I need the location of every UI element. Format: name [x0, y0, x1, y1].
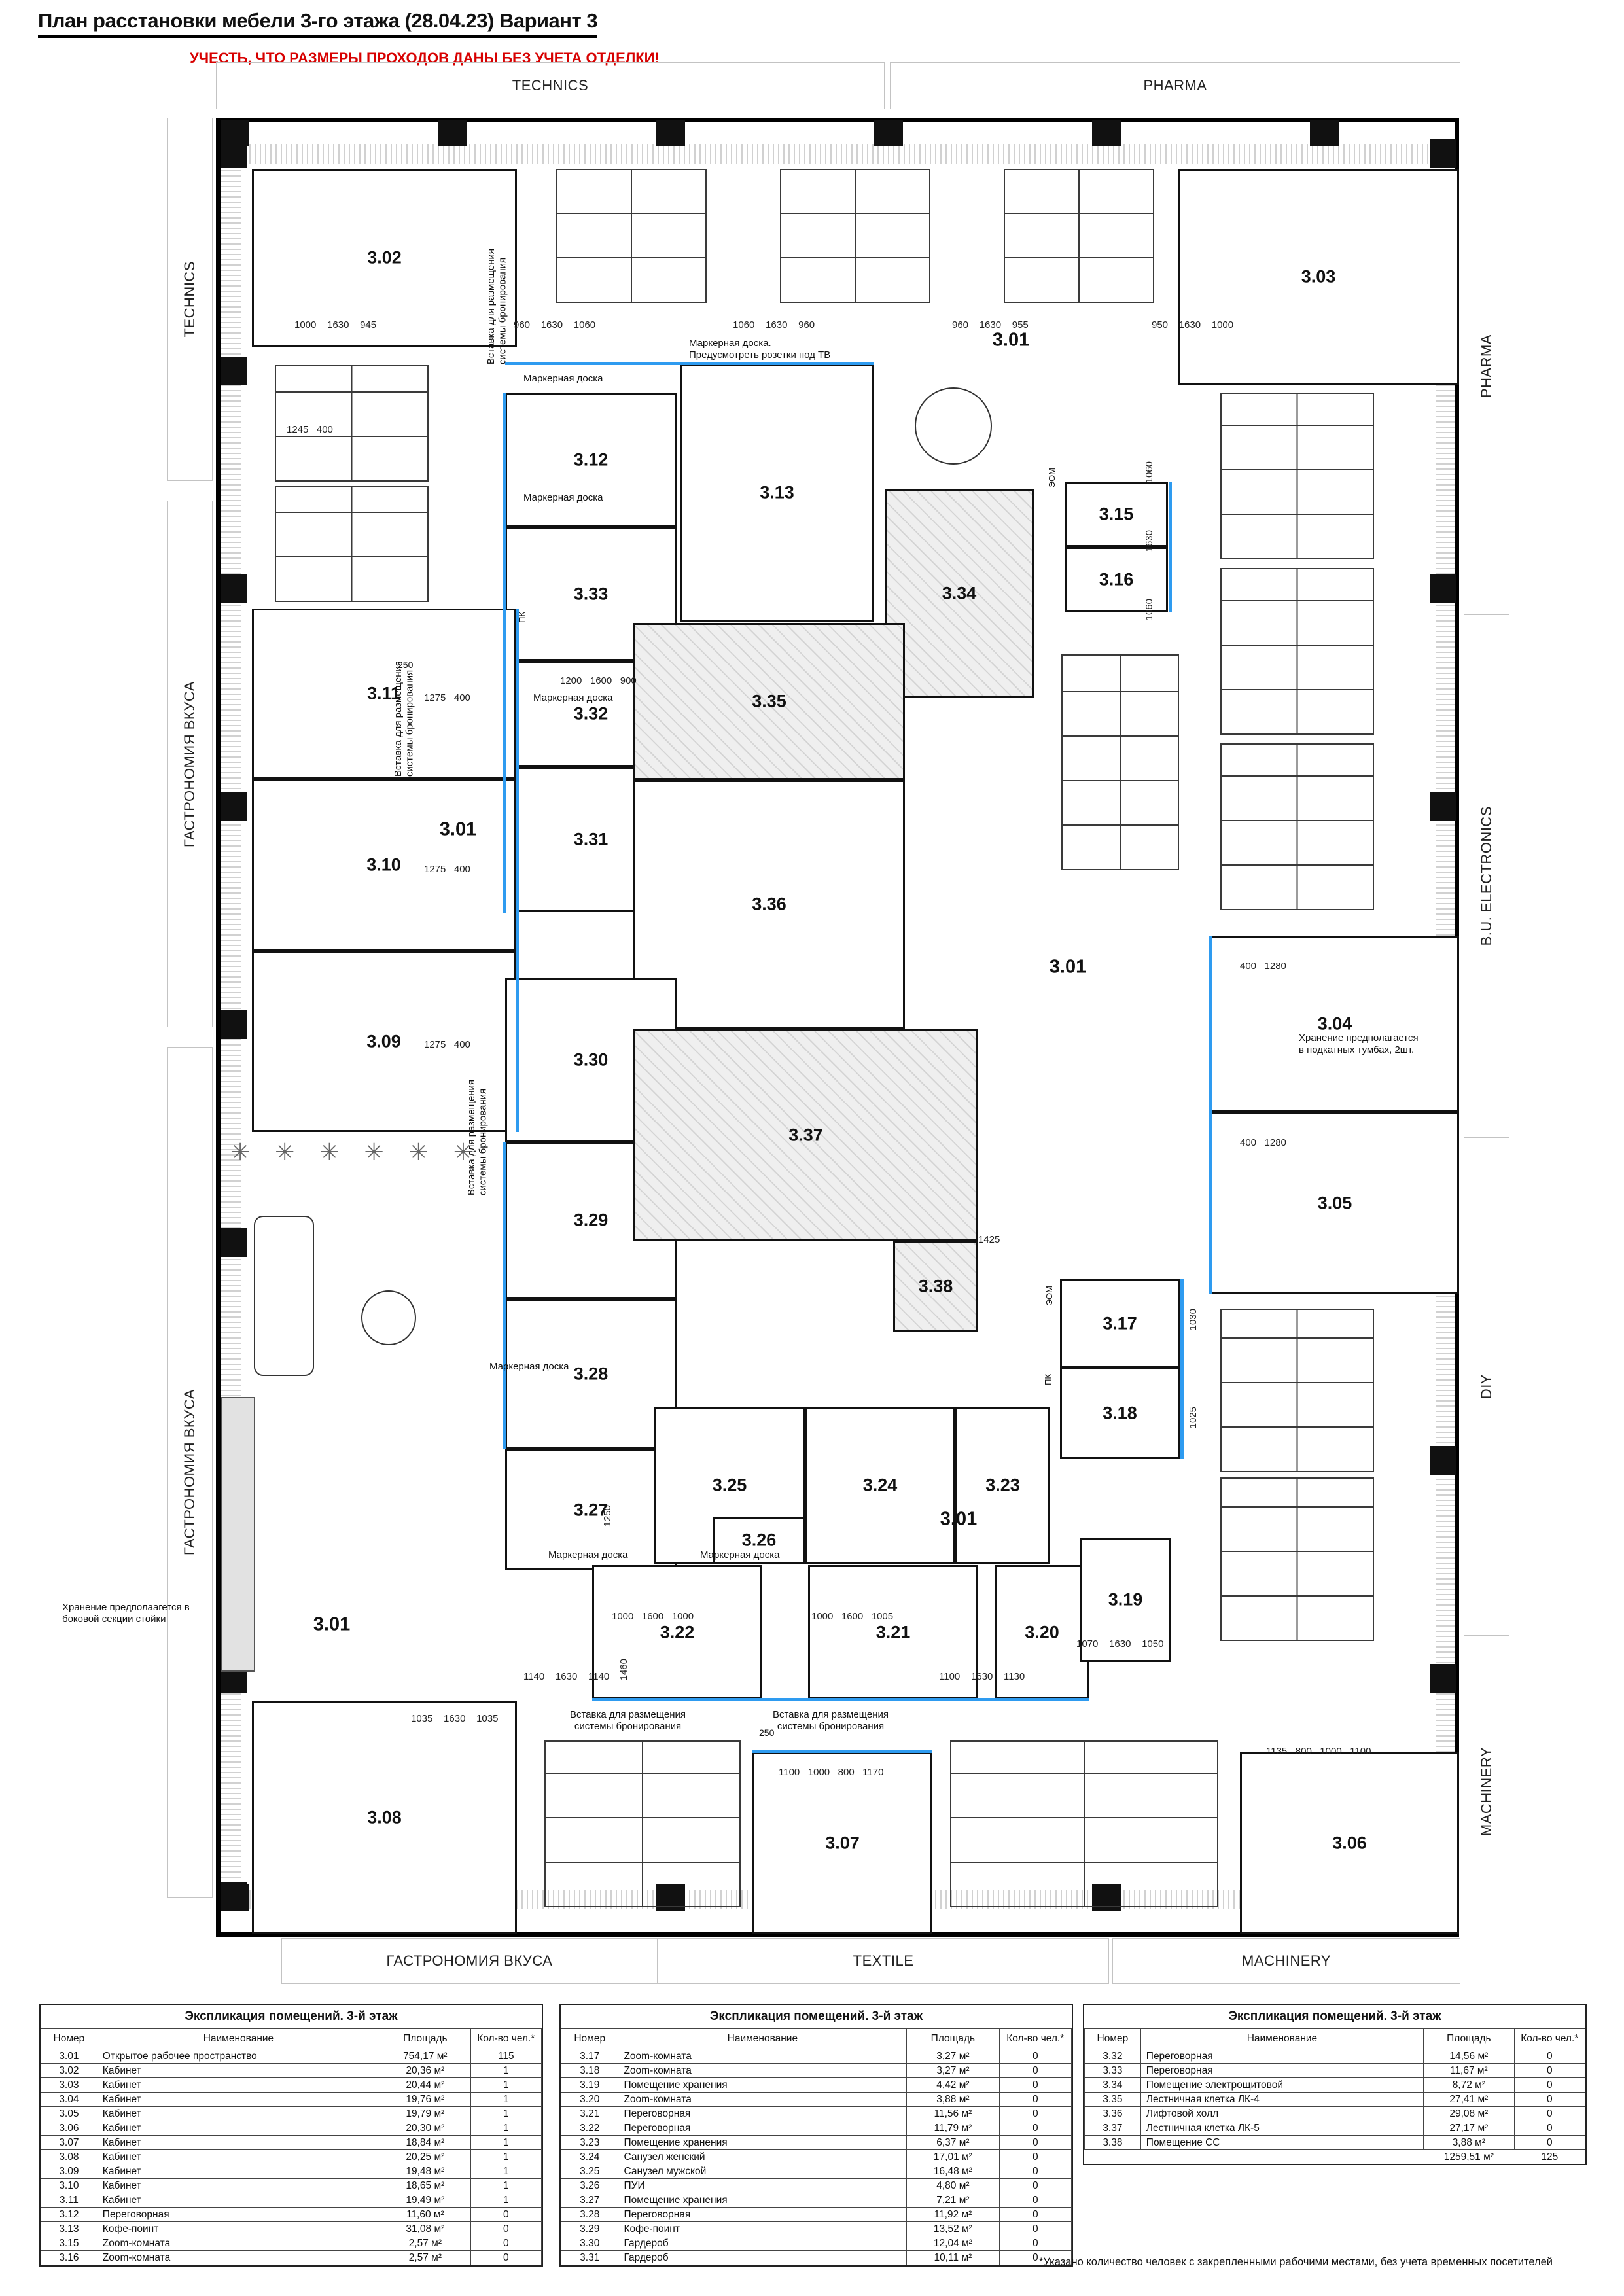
- annotation: 250: [398, 660, 413, 671]
- table-cell: Кабинет: [97, 2064, 380, 2078]
- table-row: 3.18Zoom-комната3,27 м²0: [561, 2064, 1072, 2078]
- room-number-3.16: 3.16: [1099, 570, 1134, 590]
- room-number-3.06: 3.06: [1332, 1833, 1367, 1853]
- zone-label-гастрономия-вкуса: ГАСТРОНОМИЯ ВКУСА: [167, 501, 213, 1027]
- table-cell: 0: [999, 2236, 1072, 2251]
- table-cell: 3,27 м²: [907, 2049, 999, 2064]
- zone-label-textile: TEXTILE: [658, 1938, 1109, 1984]
- table-cell: 0: [470, 2222, 541, 2236]
- table-cell: 0: [999, 2064, 1072, 2078]
- table-cell: 20,30 м²: [380, 2121, 471, 2136]
- dimension-label: 400 1280: [1240, 1137, 1286, 1148]
- dimension-label: 1025: [1188, 1407, 1199, 1428]
- zone-label-technics: TECHNICS: [167, 118, 213, 481]
- dimension-label: 1275 400: [424, 1039, 470, 1050]
- table-cell: 3,88 м²: [907, 2093, 999, 2107]
- table-cell: 2,57 м²: [380, 2251, 471, 2265]
- annotation: Маркерная доска: [523, 373, 635, 385]
- table-row: 3.09Кабинет19,48 м²1: [41, 2164, 542, 2179]
- dimension-label: 1030: [1188, 1309, 1199, 1330]
- annotation: ПК: [517, 612, 527, 623]
- table-cell: 3.16: [41, 2251, 97, 2265]
- column-header: Площадь: [1424, 2029, 1515, 2049]
- dimension-label: 1460: [618, 1659, 629, 1680]
- table-cell: 3.26: [561, 2179, 618, 2193]
- table-cell: 20,25 м²: [380, 2150, 471, 2164]
- room-number-3.20: 3.20: [1025, 1622, 1059, 1642]
- zone-label-text: ГАСТРОНОМИЯ ВКУСА: [181, 1389, 198, 1555]
- table-cell: Кофе-поинт: [618, 2222, 907, 2236]
- table-row: 3.22Переговорная11,79 м²0: [561, 2121, 1072, 2136]
- zone-label-machinery: MACHINERY: [1464, 1648, 1509, 1935]
- table-cell: 3.23: [561, 2136, 618, 2150]
- table-cell: 0: [999, 2078, 1072, 2093]
- table-cell: Кабинет: [97, 2121, 380, 2136]
- table-cell: 10,11 м²: [907, 2251, 999, 2265]
- table-cell: 0: [470, 2208, 541, 2222]
- table-cell: Помещение хранения: [618, 2136, 907, 2150]
- table-row: 3.19Помещение хранения4,42 м²0: [561, 2078, 1072, 2093]
- table-cell: Zoom-комната: [97, 2251, 380, 2265]
- table-cell: 3.19: [561, 2078, 618, 2093]
- table-cell: 3,27 м²: [907, 2064, 999, 2078]
- column-header: Площадь: [907, 2029, 999, 2049]
- room-number-3.31: 3.31: [574, 830, 609, 850]
- room-number-3.30: 3.30: [574, 1050, 609, 1070]
- table-cell: 3.21: [561, 2107, 618, 2121]
- annotation: Маркерная доска: [533, 692, 644, 704]
- table-cell: 1: [470, 2078, 541, 2093]
- column-header: Площадь: [380, 2029, 471, 2049]
- column-header: Наименование: [618, 2029, 907, 2049]
- table-title: Экспликация помещений. 3-й этаж: [561, 2005, 1072, 2028]
- table-cell: 18,65 м²: [380, 2179, 471, 2193]
- room-number-3.26: 3.26: [742, 1530, 777, 1551]
- column-header: Наименование: [97, 2029, 380, 2049]
- annotation: Маркерная доска: [548, 1549, 660, 1561]
- table-cell: Кабинет: [97, 2179, 380, 2193]
- desk-bank: [556, 169, 707, 303]
- zone-label-diy: DIY: [1464, 1137, 1509, 1636]
- desk-bank: [1220, 1477, 1374, 1641]
- dimension-label: 1275 400: [424, 864, 470, 875]
- table-row: 3.01Открытое рабочее пространство754,17 …: [41, 2049, 542, 2064]
- zone-label-text: MACHINERY: [1242, 1952, 1331, 1969]
- zone-label-text: TEXTILE: [853, 1952, 914, 1969]
- glass-wall: [752, 1750, 932, 1753]
- table-cell: 0: [999, 2107, 1072, 2121]
- table-cell: 0: [999, 2179, 1072, 2193]
- table-cell: 0: [999, 2049, 1072, 2064]
- table-row: 3.03Кабинет20,44 м²1: [41, 2078, 542, 2093]
- table-cell: 3.34: [1085, 2078, 1141, 2093]
- table-cell: 8,72 м²: [1424, 2078, 1515, 2093]
- total-cell: 1259,51 м²: [1424, 2150, 1515, 2164]
- glass-wall: [1169, 482, 1172, 612]
- open-space-label: 3.01: [993, 330, 1029, 351]
- table-row: 3.25Санузел мужской16,48 м²0: [561, 2164, 1072, 2179]
- table-cell: 1: [470, 2107, 541, 2121]
- table-cell: 0: [1514, 2121, 1585, 2136]
- table-cell: 11,60 м²: [380, 2208, 471, 2222]
- table-cell: Кофе-поинт: [97, 2222, 380, 2236]
- column-header: Номер: [561, 2029, 618, 2049]
- dimension-label: 1275 400: [424, 692, 470, 703]
- glass-wall: [503, 661, 506, 913]
- table-row: 3.06Кабинет20,30 м²1: [41, 2121, 542, 2136]
- table-cell: 3.29: [561, 2222, 618, 2236]
- room-number-3.33: 3.33: [574, 584, 609, 604]
- dimension-label: 1425: [978, 1234, 1000, 1245]
- dimension-label: 1070 1630 1050: [1076, 1638, 1163, 1650]
- table-cell: 3.32: [1085, 2049, 1141, 2064]
- table-cell: 1: [470, 2093, 541, 2107]
- glass-wall: [592, 1698, 1089, 1701]
- dimension-label: 1630: [1144, 530, 1155, 552]
- table-cell: 0: [470, 2236, 541, 2251]
- table-row: 3.26ПУИ4,80 м²0: [561, 2179, 1072, 2193]
- dimension-label: 1000 1630 945: [294, 319, 376, 330]
- table-cell: 3.38: [1085, 2136, 1141, 2150]
- table-cell: 3.03: [41, 2078, 97, 2093]
- table-cell: 17,01 м²: [907, 2150, 999, 2164]
- table-cell: Гардероб: [618, 2251, 907, 2265]
- table-cell: 3.01: [41, 2049, 97, 2064]
- table-cell: Санузел женский: [618, 2150, 907, 2164]
- annotation: ЭОМ: [1044, 1286, 1054, 1305]
- table-row: 3.07Кабинет18,84 м²1: [41, 2136, 542, 2150]
- table-cell: 1: [470, 2193, 541, 2208]
- desk-bank: [1220, 568, 1374, 735]
- room-number-3.37: 3.37: [788, 1125, 823, 1145]
- table-cell: 0: [999, 2193, 1072, 2208]
- table-cell: Zoom-комната: [618, 2093, 907, 2107]
- table-cell: 3.27: [561, 2193, 618, 2208]
- table-cell: Переговорная: [1140, 2064, 1423, 2078]
- room-number-3.04: 3.04: [1318, 1014, 1352, 1034]
- table-cell: 1: [470, 2136, 541, 2150]
- table-cell: 3.30: [561, 2236, 618, 2251]
- table-title: Экспликация помещений. 3-й этаж: [1084, 2005, 1585, 2028]
- table-row: 3.32Переговорная14,56 м²0: [1085, 2049, 1585, 2064]
- table-cell: Открытое рабочее пространство: [97, 2049, 380, 2064]
- table-row: 3.30Гардероб12,04 м²0: [561, 2236, 1072, 2251]
- schedule-footnote: *Указано количество человек с закрепленн…: [1039, 2256, 1595, 2269]
- table-cell: 3.20: [561, 2093, 618, 2107]
- room-number-3.07: 3.07: [825, 1833, 860, 1853]
- column-header: Кол-во чел.*: [999, 2029, 1072, 2049]
- room-number-3.02: 3.02: [367, 248, 402, 268]
- table-row: 3.05Кабинет19,79 м²1: [41, 2107, 542, 2121]
- table-cell: 31,08 м²: [380, 2222, 471, 2236]
- floor-plan-sheet: План расстановки мебели 3-го этажа (28.0…: [0, 0, 1624, 2296]
- circle-shape: [361, 1290, 416, 1345]
- table-cell: 3.08: [41, 2150, 97, 2164]
- table-cell: 18,84 м²: [380, 2136, 471, 2150]
- room-number-3.32: 3.32: [574, 704, 609, 724]
- table-cell: 1: [470, 2121, 541, 2136]
- table-row: 3.27Помещение хранения7,21 м²0: [561, 2193, 1072, 2208]
- table-cell: 3.11: [41, 2193, 97, 2208]
- desk-bank: [950, 1740, 1218, 1907]
- table-cell: 27,41 м²: [1424, 2093, 1515, 2107]
- table-cell: Переговорная: [618, 2121, 907, 2136]
- table-title: Экспликация помещений. 3-й этаж: [41, 2005, 542, 2028]
- room-number-3.29: 3.29: [574, 1210, 609, 1231]
- table-cell: 3,88 м²: [1424, 2136, 1515, 2150]
- table-cell: 27,17 м²: [1424, 2121, 1515, 2136]
- table-row: 3.34Помещение электрощитовой8,72 м²0: [1085, 2078, 1585, 2093]
- table-row: 3.17Zoom-комната3,27 м²0: [561, 2049, 1072, 2064]
- room-number-3.35: 3.35: [752, 692, 786, 712]
- table-cell: Санузел мужской: [618, 2164, 907, 2179]
- sofa-shape: [254, 1216, 314, 1376]
- table-cell: 0: [999, 2208, 1072, 2222]
- table-row: 3.31Гардероб10,11 м²0: [561, 2251, 1072, 2265]
- table-cell: Лестничная клетка ЛК-5: [1140, 2121, 1423, 2136]
- table-cell: ПУИ: [618, 2179, 907, 2193]
- dimension-label: 1140 1630 1140: [523, 1671, 609, 1682]
- glass-wall: [503, 1142, 506, 1449]
- total-cell: [1085, 2150, 1141, 2164]
- column-header: Наименование: [1140, 2029, 1423, 2049]
- table-cell: 16,48 м²: [907, 2164, 999, 2179]
- table-cell: 3.15: [41, 2236, 97, 2251]
- table-cell: 3.17: [561, 2049, 618, 2064]
- annotation: Маркерная доска. Предусмотреть розетки п…: [689, 338, 866, 361]
- table-cell: 3.09: [41, 2164, 97, 2179]
- dimension-label: 950 1630 1000: [1152, 319, 1233, 330]
- table-cell: 1: [470, 2064, 541, 2078]
- table-cell: 3.36: [1085, 2107, 1141, 2121]
- wstrip-shape: [239, 144, 1436, 164]
- table-cell: Лестничная клетка ЛК-4: [1140, 2093, 1423, 2107]
- zone-label-technics: TECHNICS: [216, 62, 885, 109]
- table-cell: 3.24: [561, 2150, 618, 2164]
- page-title: План расстановки мебели 3-го этажа (28.0…: [38, 9, 597, 38]
- table-row: 3.36Лифтовой холл29,08 м²0: [1085, 2107, 1585, 2121]
- zone-label-text: TECHNICS: [181, 261, 198, 337]
- annotation: ЭОМ: [1047, 468, 1057, 487]
- table-cell: Переговорная: [97, 2208, 380, 2222]
- table-cell: Кабинет: [97, 2164, 380, 2179]
- dimension-label: 400 1280: [1240, 961, 1286, 972]
- column-header: Номер: [1085, 2029, 1141, 2049]
- dimension-label: 1060: [1144, 461, 1155, 483]
- dimension-label: 960 1630 1060: [514, 319, 595, 330]
- table-cell: 0: [1514, 2136, 1585, 2150]
- zone-label-text: PHARMA: [1478, 334, 1495, 398]
- table-row: 3.08Кабинет20,25 м²1: [41, 2150, 542, 2164]
- room-schedule-table-2: Экспликация помещений. 3-й этажНомерНаим…: [559, 2004, 1073, 2267]
- glass-wall: [516, 609, 519, 1132]
- room-number-3.09: 3.09: [366, 1031, 401, 1051]
- table-cell: 3.06: [41, 2121, 97, 2136]
- room-number-3.21: 3.21: [876, 1622, 911, 1642]
- zone-label-pharma: PHARMA: [1464, 118, 1509, 615]
- annotation: Вставка для размещения системы бронирова…: [760, 1709, 901, 1732]
- table-cell: 3.22: [561, 2121, 618, 2136]
- table-cell: 11,56 м²: [907, 2107, 999, 2121]
- desk-bank: [1220, 743, 1374, 910]
- zone-label-text: ГАСТРОНОМИЯ ВКУСА: [181, 681, 198, 847]
- table-cell: 0: [1514, 2078, 1585, 2093]
- table-cell: 0: [999, 2222, 1072, 2236]
- desk-bank: [1004, 169, 1154, 303]
- annotation: Хранение предполаагется в боковой секции…: [62, 1602, 239, 1625]
- annotation: 250: [759, 1727, 774, 1739]
- zone-label-text: ГАСТРОНОМИЯ ВКУСА: [387, 1952, 553, 1969]
- table-row: 3.29Кофе-поинт13,52 м²0: [561, 2222, 1072, 2236]
- table-cell: 3.25: [561, 2164, 618, 2179]
- zone-label-pharma: PHARMA: [890, 62, 1460, 109]
- table-cell: 0: [999, 2150, 1072, 2164]
- table-cell: 3.35: [1085, 2093, 1141, 2107]
- table-cell: 3.12: [41, 2208, 97, 2222]
- annotation: Маркерная доска: [489, 1361, 601, 1373]
- table-cell: 19,49 м²: [380, 2193, 471, 2208]
- table-row: 3.10Кабинет18,65 м²1: [41, 2179, 542, 2193]
- desk-bank: [544, 1740, 741, 1907]
- room-number-3.19: 3.19: [1108, 1590, 1143, 1610]
- open-space-label: 3.01: [1050, 957, 1086, 978]
- room-number-3.24: 3.24: [863, 1475, 898, 1496]
- dimension-label: 1000 1600 1005: [811, 1611, 893, 1622]
- table-row: 3.16Zoom-комната2,57 м²0: [41, 2251, 542, 2265]
- desk-bank: [1220, 1309, 1374, 1472]
- zone-label-text: PHARMA: [1143, 77, 1207, 94]
- table-cell: Кабинет: [97, 2107, 380, 2121]
- table-row: 3.13Кофе-поинт31,08 м²0: [41, 2222, 542, 2236]
- room-number-3.08: 3.08: [367, 1807, 402, 1828]
- table-cell: 3.28: [561, 2208, 618, 2222]
- column-header: Кол-во чел.*: [1514, 2029, 1585, 2049]
- table-cell: 19,48 м²: [380, 2164, 471, 2179]
- annotation: Вставка для размещения системы бронирова…: [557, 1709, 698, 1732]
- annotation: Вставка для размещения системы бронирова…: [393, 661, 415, 777]
- circle-shape: [915, 387, 992, 465]
- table-cell: Помещение электрощитовой: [1140, 2078, 1423, 2093]
- table-cell: 19,76 м²: [380, 2093, 471, 2107]
- room-number-3.23: 3.23: [985, 1475, 1020, 1496]
- glass-wall: [1180, 1279, 1184, 1459]
- room-schedule-table-1: Экспликация помещений. 3-й этажНомерНаим…: [39, 2004, 543, 2267]
- desk-bank: [1220, 393, 1374, 559]
- zone-label-text: TECHNICS: [512, 77, 588, 94]
- dimension-label: 1100 1000 800 1170: [779, 1767, 883, 1778]
- table-cell: 0: [1514, 2064, 1585, 2078]
- table-row: 3.02Кабинет20,36 м²1: [41, 2064, 542, 2078]
- table-cell: Лифтовой холл: [1140, 2107, 1423, 2121]
- table-cell: 3.33: [1085, 2064, 1141, 2078]
- table-cell: Кабинет: [97, 2078, 380, 2093]
- table-cell: 1: [470, 2164, 541, 2179]
- desk-bank: [780, 169, 930, 303]
- table-cell: Кабинет: [97, 2193, 380, 2208]
- table-row: 3.33Переговорная11,67 м²0: [1085, 2064, 1585, 2078]
- table-cell: Zoom-комната: [97, 2236, 380, 2251]
- table-row: 3.20Zoom-комната3,88 м²0: [561, 2093, 1072, 2107]
- annotation: Маркерная доска: [523, 492, 635, 504]
- column-header: Кол-во чел.*: [470, 2029, 541, 2049]
- desk-bank: [275, 365, 429, 482]
- table-row: 3.04Кабинет19,76 м²1: [41, 2093, 542, 2107]
- glass-wall: [503, 393, 506, 661]
- zone-label-гастрономия-вкуса: ГАСТРОНОМИЯ ВКУСА: [281, 1938, 658, 1984]
- glass-wall: [505, 362, 874, 365]
- dimension-label: 1035 1630 1035: [411, 1713, 498, 1724]
- table-cell: 0: [999, 2136, 1072, 2150]
- table-cell: 0: [1514, 2107, 1585, 2121]
- table-row: 3.12Переговорная11,60 м²0: [41, 2208, 542, 2222]
- table-cell: 0: [999, 2164, 1072, 2179]
- table-cell: Zoom-комната: [618, 2064, 907, 2078]
- open-space-label: 3.01: [940, 1509, 977, 1530]
- annotation: Вставка для размещения системы бронирова…: [466, 1080, 489, 1195]
- open-space-label: 3.01: [313, 1614, 350, 1636]
- table-row: 3.15Zoom-комната2,57 м²0: [41, 2236, 542, 2251]
- table-cell: Переговорная: [618, 2208, 907, 2222]
- glass-wall: [1209, 936, 1212, 1294]
- table-row: 3.23Помещение хранения6,37 м²0: [561, 2136, 1072, 2150]
- table-row: 3.11Кабинет19,49 м²1: [41, 2193, 542, 2208]
- table-cell: 3.02: [41, 2064, 97, 2078]
- table-cell: 4,80 м²: [907, 2179, 999, 2193]
- dimension-label: 1200 1600 900: [560, 675, 637, 686]
- room-number-3.36: 3.36: [752, 894, 786, 915]
- table-row: 3.28Переговорная11,92 м²0: [561, 2208, 1072, 2222]
- zone-label-text: MACHINERY: [1478, 1747, 1495, 1836]
- dimension-label: 1000 1600 1000: [612, 1611, 694, 1622]
- dimension-label: 1100 1630 1130: [939, 1671, 1025, 1682]
- dimension-label: 1060 1630 960: [733, 319, 815, 330]
- table-cell: 3.13: [41, 2222, 97, 2236]
- room-number-3.34: 3.34: [942, 584, 977, 604]
- table-cell: 29,08 м²: [1424, 2107, 1515, 2121]
- cols-shape: [221, 120, 1456, 146]
- annotation: Хранение предполагается в подкатных тумб…: [1299, 1033, 1485, 1055]
- table-cell: Гардероб: [618, 2236, 907, 2251]
- dimension-label: 1135 800 1000 1100: [1266, 1746, 1371, 1757]
- annotation: ПК: [1043, 1374, 1053, 1385]
- table-cell: 6,37 м²: [907, 2136, 999, 2150]
- table-cell: 0: [999, 2093, 1072, 2107]
- dimension-label: 1060: [1144, 599, 1155, 620]
- table-cell: 13,52 м²: [907, 2222, 999, 2236]
- room-schedule-table-3: Экспликация помещений. 3-й этажНомерНаим…: [1083, 2004, 1587, 2165]
- table-cell: 0: [1514, 2049, 1585, 2064]
- table-cell: 20,44 м²: [380, 2078, 471, 2093]
- table-cell: 115: [470, 2049, 541, 2064]
- room-number-3.10: 3.10: [366, 855, 401, 875]
- dimension-label: 1245 400: [287, 424, 333, 435]
- room-number-3.05: 3.05: [1318, 1193, 1352, 1214]
- table-cell: 2,57 м²: [380, 2236, 471, 2251]
- table-cell: 0: [470, 2251, 541, 2265]
- table-cell: 0: [999, 2121, 1072, 2136]
- annotation: Вставка для размещения системы бронирова…: [485, 249, 508, 364]
- table-cell: Кабинет: [97, 2150, 380, 2164]
- table-row: 3.35Лестничная клетка ЛК-427,41 м²0: [1085, 2093, 1585, 2107]
- table-cell: 11,79 м²: [907, 2121, 999, 2136]
- table-cell: 1: [470, 2150, 541, 2164]
- zone-label-machinery: MACHINERY: [1112, 1938, 1460, 1984]
- zone-label-text: B.U. ELECTRONICS: [1478, 806, 1495, 945]
- column-header: Номер: [41, 2029, 97, 2049]
- table-cell: 20,36 м²: [380, 2064, 471, 2078]
- table-cell: 14,56 м²: [1424, 2049, 1515, 2064]
- table-cell: 7,21 м²: [907, 2193, 999, 2208]
